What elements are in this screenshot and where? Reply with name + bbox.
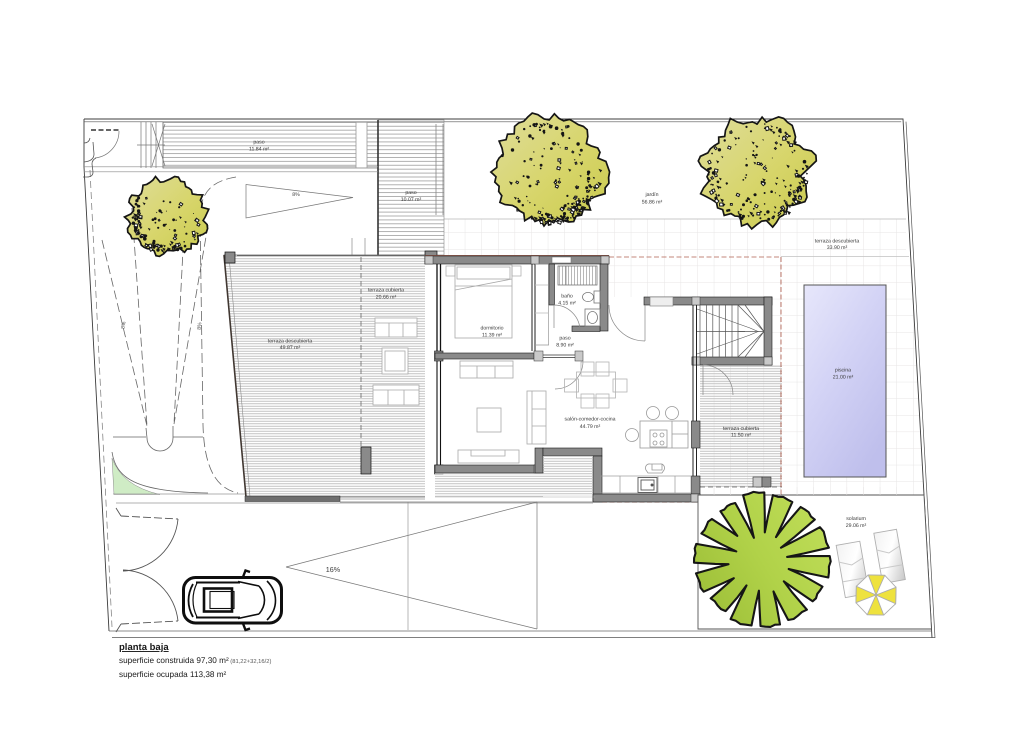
svg-text:44.79 m²: 44.79 m² — [580, 424, 601, 430]
svg-text:8%: 8% — [197, 322, 204, 330]
svg-text:8%: 8% — [120, 321, 127, 330]
svg-text:baño: baño — [561, 294, 573, 300]
svg-text:29.06 m²: 29.06 m² — [846, 523, 867, 529]
svg-text:16%: 16% — [326, 565, 341, 574]
svg-text:4.15 m²: 4.15 m² — [558, 301, 576, 307]
svg-text:10.07 m²: 10.07 m² — [401, 197, 422, 203]
svg-text:11.84 m²: 11.84 m² — [249, 147, 269, 153]
svg-text:33.90 m²: 33.90 m² — [827, 245, 848, 251]
svg-text:56.86 m²: 56.86 m² — [642, 200, 663, 206]
svg-text:terraza descubierta: terraza descubierta — [815, 239, 860, 245]
svg-text:jardín: jardín — [645, 192, 659, 198]
svg-text:11.39 m²: 11.39 m² — [482, 333, 502, 339]
svg-text:8.90 m²: 8.90 m² — [556, 343, 574, 349]
svg-text:dormitorio: dormitorio — [480, 326, 503, 332]
svg-text:paso: paso — [253, 140, 264, 146]
svg-text:solarium: solarium — [846, 516, 866, 522]
svg-text:planta baja: planta baja — [119, 642, 169, 653]
svg-text:49.87 m²: 49.87 m² — [280, 345, 301, 351]
svg-text:salón-comedor-cocina: salón-comedor-cocina — [564, 417, 615, 423]
svg-text:11.50 m²: 11.50 m² — [731, 433, 751, 439]
svg-text:terraza cubierta: terraza cubierta — [368, 288, 404, 294]
svg-text:8%: 8% — [292, 192, 300, 198]
svg-text:terraza cubierta: terraza cubierta — [723, 426, 759, 432]
svg-text:21.00 m²: 21.00 m² — [833, 375, 854, 381]
svg-text:paso: paso — [559, 336, 570, 342]
svg-text:terraza descubierta: terraza descubierta — [268, 339, 313, 345]
svg-text:paso: paso — [405, 190, 416, 196]
svg-text:superficie ocupada 113,38 m²: superficie ocupada 113,38 m² — [119, 670, 227, 679]
svg-text:20.66 m²: 20.66 m² — [376, 295, 397, 301]
svg-text:piscina: piscina — [835, 368, 851, 374]
